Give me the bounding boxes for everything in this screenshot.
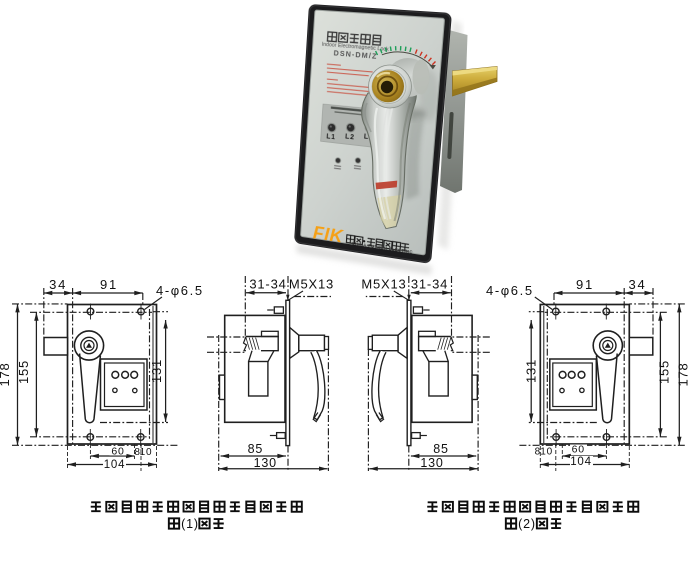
svg-text:178: 178 — [676, 362, 691, 386]
svg-text:34: 34 — [49, 277, 67, 292]
svg-text:178: 178 — [0, 362, 12, 386]
svg-text:M5X13: M5X13 — [289, 277, 334, 292]
svg-text:60: 60 — [111, 446, 124, 458]
svg-text:91: 91 — [100, 277, 118, 292]
svg-text:60: 60 — [572, 444, 585, 456]
svg-text:91: 91 — [576, 277, 594, 292]
svg-text:130: 130 — [420, 456, 443, 470]
svg-text:L1: L1 — [326, 133, 336, 141]
svg-text:85: 85 — [433, 442, 449, 456]
svg-text:85: 85 — [248, 442, 264, 456]
svg-text:M5X13: M5X13 — [361, 277, 406, 292]
svg-text:31-34: 31-34 — [411, 277, 448, 292]
svg-text:155: 155 — [16, 360, 31, 384]
svg-text:(1): (1) — [181, 517, 199, 531]
svg-text:130: 130 — [254, 456, 277, 470]
svg-text:4-φ6.5: 4-φ6.5 — [486, 283, 534, 298]
svg-text:10: 10 — [140, 447, 153, 458]
svg-text:L3: L3 — [364, 133, 374, 142]
svg-text:104: 104 — [570, 456, 592, 468]
svg-text:4-φ6.5: 4-φ6.5 — [156, 283, 204, 298]
svg-text:155: 155 — [657, 360, 672, 384]
svg-text:34: 34 — [628, 277, 646, 292]
svg-text:10: 10 — [540, 447, 553, 458]
svg-text:131: 131 — [524, 359, 539, 383]
svg-text:131: 131 — [149, 359, 164, 383]
svg-text:104: 104 — [104, 459, 126, 471]
svg-text:(2): (2) — [518, 517, 536, 531]
svg-text:L2: L2 — [345, 133, 355, 141]
svg-text:31-34: 31-34 — [249, 277, 286, 292]
